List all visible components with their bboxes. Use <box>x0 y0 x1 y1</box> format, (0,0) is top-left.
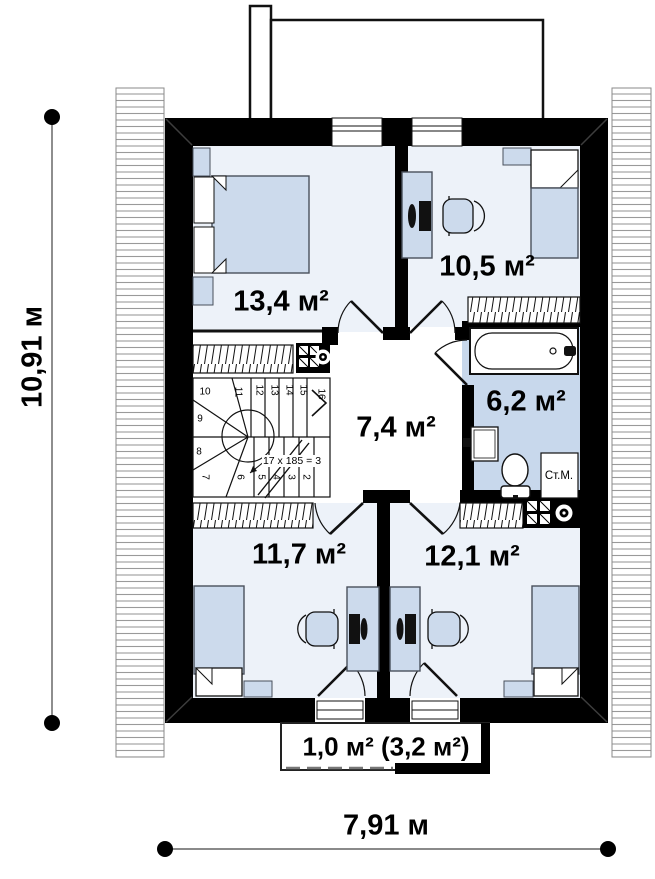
room-label-balcony: 1,0 м² (3,2 м²) <box>302 732 469 763</box>
monitor-icon <box>419 201 431 231</box>
dimension-line-bottom <box>157 841 616 857</box>
stair-step-number: 11 <box>233 387 244 397</box>
roof-overhang-left <box>116 88 164 757</box>
room-label-bedroom3: 11,7 м² <box>252 539 346 572</box>
dormer-outline <box>271 20 543 120</box>
chimney-outline <box>250 6 271 120</box>
room-label-bathroom: 6,2 м² <box>486 386 565 419</box>
stair-step-number: 5 <box>256 474 267 480</box>
stair-step-number: 3 <box>286 474 297 480</box>
wardrobe-under-bedroom1 <box>193 345 293 373</box>
monitor-icon <box>349 614 360 644</box>
stair-step-number: 10 <box>199 387 210 398</box>
dimension-label-left: 10,91 м <box>17 306 50 408</box>
window-top-right <box>412 118 462 146</box>
vent-block-stairs <box>296 343 331 373</box>
stair-formula-note: 17 x 185 = 3 <box>262 455 322 467</box>
vent-block-bathroom <box>523 497 580 528</box>
desk-bedroom4 <box>390 587 420 671</box>
desk-bedroom2 <box>402 172 432 258</box>
window-top-left <box>332 118 382 146</box>
room-label-bedroom4: 12,1 м² <box>424 541 520 574</box>
desk-bedroom3 <box>347 587 379 671</box>
stair-step-number: 15 <box>298 384 309 395</box>
stair-step-number: 4 <box>271 474 282 480</box>
room-label-bedroom1: 13,4 м² <box>233 286 329 319</box>
stair-step-number: 9 <box>197 414 203 425</box>
room-label-hall: 7,4 м² <box>356 412 435 445</box>
stair-step-number: 7 <box>200 474 211 480</box>
stair-step-number: 2 <box>301 474 312 480</box>
roof-overhang-right <box>612 88 651 757</box>
dimension-line-left <box>44 109 60 731</box>
dimension-label-bottom: 7,91 м <box>343 810 429 843</box>
wardrobe-bedroom3 <box>193 503 313 528</box>
wardrobe-bedroom4 <box>460 503 523 528</box>
stair-step-number: 12 <box>254 384 265 395</box>
bathtub <box>470 328 578 374</box>
room-label-bedroom2: 10,5 м² <box>439 251 535 284</box>
toilet <box>501 454 530 499</box>
stair-step-number: 6 <box>235 474 246 480</box>
stair-step-number: 16 <box>316 388 327 399</box>
stair-step-number: 8 <box>196 447 202 458</box>
washing-machine-label: Ст.М. <box>545 470 573 482</box>
wardrobe-bedroom2 <box>468 297 580 323</box>
stair-step-number: 14 <box>284 384 295 395</box>
monitor-icon <box>405 614 416 644</box>
floor-plan-page: 10,91 м 7,91 м 13,4 м² 10,5 м² 7,4 м² 6,… <box>0 0 655 879</box>
stair-step-number: 13 <box>269 384 280 395</box>
